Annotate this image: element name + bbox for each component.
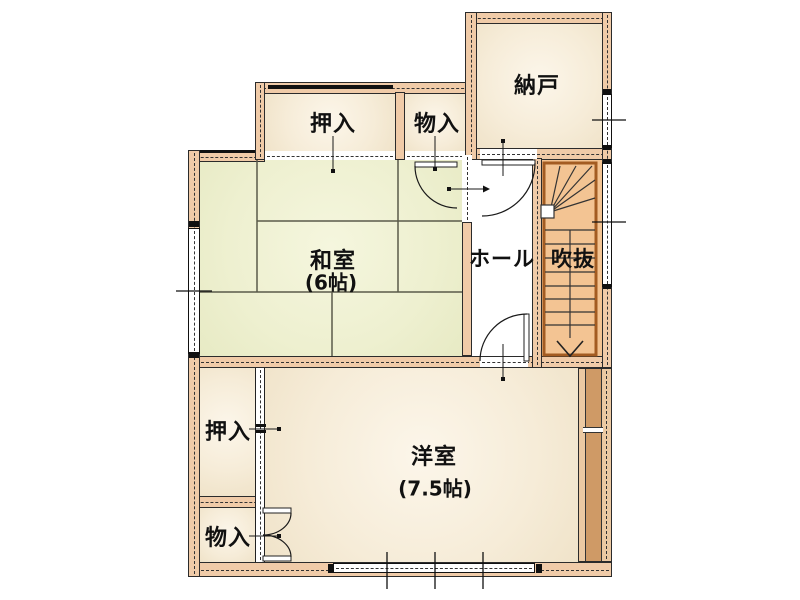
room-label-monoire-bottom: 物入	[205, 520, 251, 552]
room-label-washitsu-size: (6帖)	[305, 267, 357, 296]
room-label-oshiire-left: 押入	[205, 414, 251, 446]
room-label-oshiire-top: 押入	[310, 106, 356, 138]
room-label-nando: 納戸	[514, 68, 560, 100]
room-label-yoshitsu-size: (7.5帖)	[398, 473, 472, 502]
stair-newel	[541, 205, 554, 218]
room-label-hall: ホール	[469, 243, 535, 273]
room-label-fukinuke: 吹抜	[551, 243, 595, 273]
room-label-monoire-top: 物入	[414, 106, 460, 138]
plan-linework	[0, 0, 800, 600]
stair-winder	[545, 166, 595, 230]
room-label-yoshitsu: 洋室	[411, 439, 457, 471]
floor-plan: 納戸 押入 物入 和室 (6帖) ホール 吹抜 押入 物入 洋室 (7.5帖)	[0, 0, 800, 600]
